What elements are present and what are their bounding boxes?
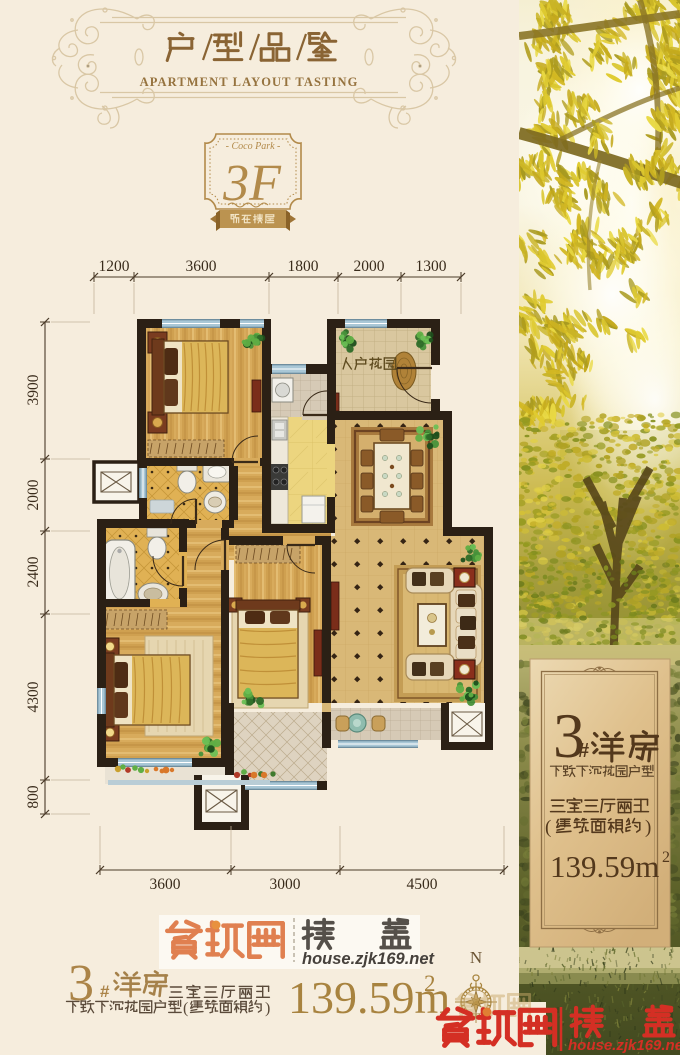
svg-text:(: ( — [545, 817, 551, 838]
svg-text:2400: 2400 — [25, 556, 42, 587]
svg-text:4300: 4300 — [25, 681, 42, 712]
svg-text:house.zjk169.net: house.zjk169.net — [568, 1037, 680, 1054]
svg-text:4500: 4500 — [407, 876, 438, 893]
svg-text:1800: 1800 — [288, 258, 319, 275]
svg-text:): ) — [645, 817, 651, 838]
svg-text:3900: 3900 — [25, 374, 42, 405]
svg-text:2000: 2000 — [354, 258, 385, 275]
svg-text:#: # — [100, 982, 110, 1001]
svg-text:2: 2 — [424, 971, 436, 996]
svg-text:): ) — [265, 1000, 270, 1017]
svg-text:3600: 3600 — [186, 258, 217, 275]
svg-text:1200: 1200 — [99, 258, 130, 275]
svg-text:3000: 3000 — [270, 876, 301, 893]
svg-text:139.59m: 139.59m — [550, 849, 659, 884]
svg-text:2: 2 — [662, 849, 670, 866]
svg-text:(: ( — [183, 1000, 188, 1017]
svg-text:3600: 3600 — [150, 876, 181, 893]
svg-text:N: N — [470, 948, 482, 967]
svg-text:- Coco Park -: - Coco Park - — [226, 141, 281, 152]
svg-text:house.zjk169.net: house.zjk169.net — [302, 950, 436, 968]
svg-text:#: # — [578, 740, 589, 762]
svg-text:800: 800 — [25, 785, 42, 809]
svg-text:1300: 1300 — [416, 258, 447, 275]
svg-text:APARTMENT LAYOUT TASTING: APARTMENT LAYOUT TASTING — [140, 75, 359, 89]
svg-text:2000: 2000 — [25, 479, 42, 510]
